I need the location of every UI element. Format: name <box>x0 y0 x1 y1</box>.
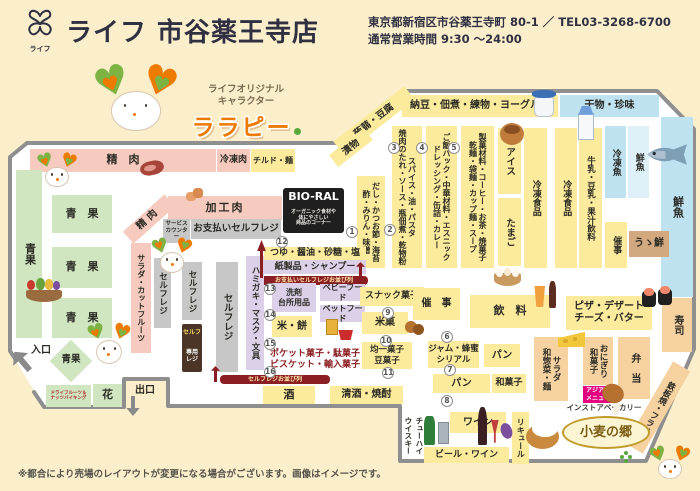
pocket-sweets: ポケット菓子・駄菓子 ビスケット・輸入菓子 <box>266 346 364 374</box>
event-right-label: 催事 <box>611 236 622 254</box>
frozen-food-2: 冷凍食品 <box>555 128 577 268</box>
salad-wasouzai-noodles-label-2: 和惣菜・麺 <box>541 348 551 391</box>
milk-soymilk-juice-label: 牛乳・豆乳・果汁飲料 <box>585 156 595 241</box>
logo-text: ライフ <box>18 44 62 54</box>
dried-fish-delicacies: 干物・珍味 <box>560 95 659 117</box>
aisle-number-8: 8 <box>441 395 453 407</box>
larapi-mascot-bakery: ♥♥♥♥ <box>650 444 690 488</box>
meat-icon <box>140 161 164 175</box>
wagashi-bottom: 和菓子 <box>492 374 526 393</box>
clover-logo-icon <box>23 8 57 42</box>
store-address: 東京都新宿区市谷薬王寺町 80-1 ／ TEL03-3268-6700 <box>368 14 671 31</box>
aisle-number-5: 5 <box>448 142 460 154</box>
produce-left-label: 青果 <box>23 243 36 265</box>
milk-carton-icon <box>576 106 596 140</box>
wine-bottles-icon <box>477 407 512 445</box>
sake: 酒 <box>263 386 315 404</box>
beer-wine: ビール・ワイン <box>424 447 509 463</box>
chuhai-cans-icon <box>424 414 451 445</box>
self-only-register-bottom: 専用 レジ <box>182 344 202 368</box>
eggs: たまご <box>498 198 521 266</box>
mascot-head <box>45 167 69 187</box>
clover-icon <box>620 451 632 463</box>
frozen-food-1: 冷凍食品 <box>524 128 547 268</box>
larapi-mascot-produce: ♥♥♥♥ <box>88 322 130 374</box>
aisle-number-13: 13 <box>264 283 276 295</box>
flowers: 花 <box>93 384 122 407</box>
life-logo-icon: ライフ <box>18 8 62 54</box>
aisle-seika-kanmen: 製菓材料・コーヒー・お茶・焼菓子乾麺・袋麺・カップ麺・スープ <box>461 126 494 268</box>
mascot-nose <box>171 263 174 266</box>
fresh-fish-right-label: 鮮魚 <box>671 196 684 218</box>
eggs-label: たまご <box>504 218 515 247</box>
onigiri-wagashi-label: おにぎり <box>598 344 608 378</box>
frozen-fish-label: 冷凍魚 <box>610 149 621 176</box>
exit-arrow-icon <box>126 396 140 416</box>
onigiri-wagashi-label-2: 和菓子 <box>588 348 598 374</box>
cheese-icon <box>558 326 585 347</box>
toothpaste-mask-stationery-label: ハミガキ・マスク・文具 <box>250 266 260 360</box>
frozen-meat: 冷凍肉 <box>217 149 250 172</box>
aisle-seika-kanmen-label: 製菓材料・コーヒー・お茶・焼菓子 <box>478 133 487 261</box>
fish-icon <box>643 141 690 168</box>
mascot-eye <box>145 104 147 107</box>
queue-arrow-3-icon <box>211 366 220 382</box>
store-hours: 通常営業時間 9:30 ～24:00 <box>368 31 671 48</box>
self-only-register-top: セルフ <box>182 326 202 340</box>
aisle-spice-sauce-label: スパイス・油・パスタ <box>407 157 416 237</box>
seishu-shochu: 清酒・焼酎 <box>330 386 403 404</box>
dried-fruit-nuts-viking: ドライフルーツ＆ ナッツバイキング <box>46 385 91 407</box>
aisle-dashi-vinegar-label-2: 酢・みりん・味噌 <box>362 190 371 254</box>
larapi-mascot-banner: ♥♥♥♥ <box>96 62 176 148</box>
event-center: 催 事 <box>413 288 460 320</box>
mascot-head <box>658 459 683 479</box>
queue-arrow-2-icon <box>356 262 365 278</box>
whiskey: ウイスキー <box>402 409 413 463</box>
komugi-no-sato-logo: 小麦の郷 <box>562 416 650 449</box>
aisle-number-6: 6 <box>441 331 453 343</box>
bento-label: 弁 当 <box>628 353 640 383</box>
chuhai: チューハイ <box>413 409 424 463</box>
salad-wasouzai-noodles-label: サラダ <box>551 356 561 382</box>
rice-mochi: 米・餅 <box>272 316 312 337</box>
drinks-icon <box>534 281 560 308</box>
pizza-dessert-cheese-butter: ピザ・デザート チーズ・バター <box>566 296 652 330</box>
salad-cut-fruit: サラダ・カットフルーツ <box>131 243 151 353</box>
uosen-sign: うゝ鮮 <box>629 231 669 257</box>
mascot-head <box>96 340 122 364</box>
milk-soymilk-juice: 牛乳・豆乳・果汁飲料 <box>579 128 602 268</box>
aisle-number-9: 9 <box>382 307 394 319</box>
mascot-name: ララピー <box>186 108 306 142</box>
liqueur-label: リキュール <box>516 418 525 458</box>
tsuyu-soy-sugar-salt: つゆ・醤油・砂糖・塩 <box>264 247 366 260</box>
detergent-kitchenware: 洗剤 台所用品 <box>272 283 316 312</box>
ice-cream-label: アイス <box>504 147 515 176</box>
self-checkout-3: セルフレジ <box>216 262 238 372</box>
baby-food: ベビーフード <box>320 284 365 301</box>
disclaimer-note: ※都合により売場のレイアウトが変更になる場合がございます。画像はイメージです。 <box>18 466 386 480</box>
aisle-seika-kanmen-label-2: 乾麺・袋麺・カップ麺・スープ <box>468 141 477 253</box>
self-checkout-3-label: セルフレジ <box>221 293 232 341</box>
bioral-title: BIO-RAL <box>283 190 344 205</box>
aisle-number-1: 1 <box>346 226 358 238</box>
header: ライフ ライフ 市谷薬王寺店 東京都新宿区市谷薬王寺町 80-1 ／ TEL03… <box>0 0 700 60</box>
bread-right: パン <box>484 344 520 367</box>
store-info: 東京都新宿区市谷薬王寺町 80-1 ／ TEL03-3268-6700 通常営業… <box>368 14 671 49</box>
entrance-label: 入口 <box>27 344 55 357</box>
aisle-dashi-vinegar-label: だし・かつお節・海苔 <box>371 182 380 262</box>
store-title: ライフ 市谷薬王寺店 <box>66 12 319 49</box>
mascot-name-text: ララピー <box>192 115 292 141</box>
rice-cracker-icon <box>405 319 425 336</box>
mascot-nose <box>56 178 59 181</box>
chilled-noodles: チルド・麺 <box>251 149 295 172</box>
aisle-number-10: 10 <box>380 335 392 347</box>
dog-food-icon <box>326 319 353 340</box>
frozen-food-1-label: 冷凍食品 <box>530 180 541 216</box>
bread-bottom: パン <box>433 374 490 393</box>
egg-basket-icon <box>494 268 521 286</box>
sushi-label: 寿司 <box>671 315 683 335</box>
mascot-nose <box>669 470 672 473</box>
aisle-number-11: 11 <box>382 367 394 379</box>
aisle-number-3: 3 <box>388 142 400 154</box>
onigiri-wagashi: おにぎり和菓子 <box>583 337 613 385</box>
clover-dot-icon <box>294 128 301 135</box>
aisle-number-4: 4 <box>416 142 428 154</box>
fried-chicken-icon <box>600 384 625 415</box>
larapi-mascot-checkout: ♥♥♥♥ <box>152 236 192 282</box>
aisle-number-15: 15 <box>264 338 276 350</box>
frozen-food-2-label: 冷凍食品 <box>561 180 572 216</box>
aisle-gohan-dressing-label-2: ドレッシング・缶詰・カレー <box>432 145 441 249</box>
salad-cut-fruit-label: サラダ・カットフルーツ <box>136 254 145 342</box>
yogurt-icon <box>532 90 556 118</box>
mascot-head <box>160 252 185 273</box>
croissant-icon <box>526 424 559 449</box>
ham-icon <box>186 188 204 204</box>
mascot-head <box>111 91 161 131</box>
aisle-number-7: 7 <box>444 364 456 376</box>
aisle-number-14: 14 <box>264 309 276 321</box>
produce-1: 青 果 <box>52 195 112 233</box>
store-floor-map-page: ライフ ライフ 市谷薬王寺店 東京都新宿区市谷薬王寺町 80-1 ／ TEL03… <box>0 0 700 491</box>
produce-diamond-label: 青果 <box>50 353 92 367</box>
vegetable-basket-icon <box>26 278 62 302</box>
whiskey-label: ウイスキー <box>403 417 412 455</box>
pay-self-checkout: お支払いセルフレジ <box>191 219 281 239</box>
mascot-nose <box>133 113 136 116</box>
event-right: 催事 <box>605 222 627 268</box>
frozen-fish: 冷凍魚 <box>605 126 626 198</box>
mascot-eye <box>114 347 116 350</box>
chuhai-label: チューハイ <box>414 417 423 455</box>
aisle-number-16: 16 <box>264 366 276 378</box>
queue-arrow-1-icon <box>257 240 266 278</box>
aisle-number-2: 2 <box>384 224 396 236</box>
aisle-number-12: 12 <box>276 236 288 248</box>
mascot-caption: ライフオリジナル キャラクター <box>188 84 304 109</box>
pastry-icon <box>500 123 524 145</box>
larapi-mascot-meat: ♥♥♥♥ <box>38 152 76 196</box>
paper-shampoo: 紙製品・シャンプー <box>264 260 366 274</box>
jam-honey-cereal: ジャム・蜂蜜 シリアル <box>428 341 479 368</box>
queue-selfregi: セルフレジお並び列 <box>220 375 330 384</box>
sushi-icon <box>642 286 673 309</box>
bioral-sub: オーガニック食材や 体にやさしい 商品のコーナー <box>283 205 344 232</box>
